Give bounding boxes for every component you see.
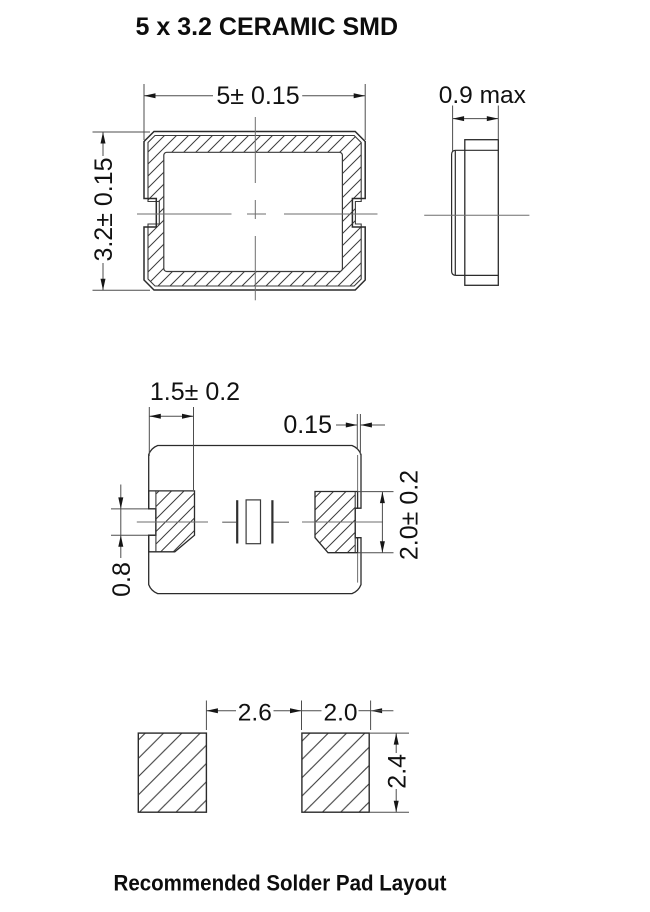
- svg-text:5± 0.15: 5± 0.15: [216, 82, 299, 110]
- svg-text:0.15: 0.15: [283, 411, 332, 439]
- svg-text:0.8: 0.8: [108, 562, 136, 597]
- svg-text:5 x 3.2 CERAMIC SMD: 5 x 3.2 CERAMIC SMD: [136, 13, 399, 41]
- svg-text:Recommended Solder Pad Layout: Recommended Solder Pad Layout: [114, 871, 448, 896]
- svg-text:0.9 max: 0.9 max: [439, 82, 526, 109]
- svg-text:2.0: 2.0: [323, 700, 357, 727]
- svg-text:3.2± 0.15: 3.2± 0.15: [90, 157, 118, 261]
- svg-text:1.5± 0.2: 1.5± 0.2: [150, 378, 240, 406]
- svg-text:2.6: 2.6: [238, 700, 272, 727]
- svg-text:2.0± 0.2: 2.0± 0.2: [396, 470, 424, 560]
- svg-text:2.4: 2.4: [384, 754, 412, 789]
